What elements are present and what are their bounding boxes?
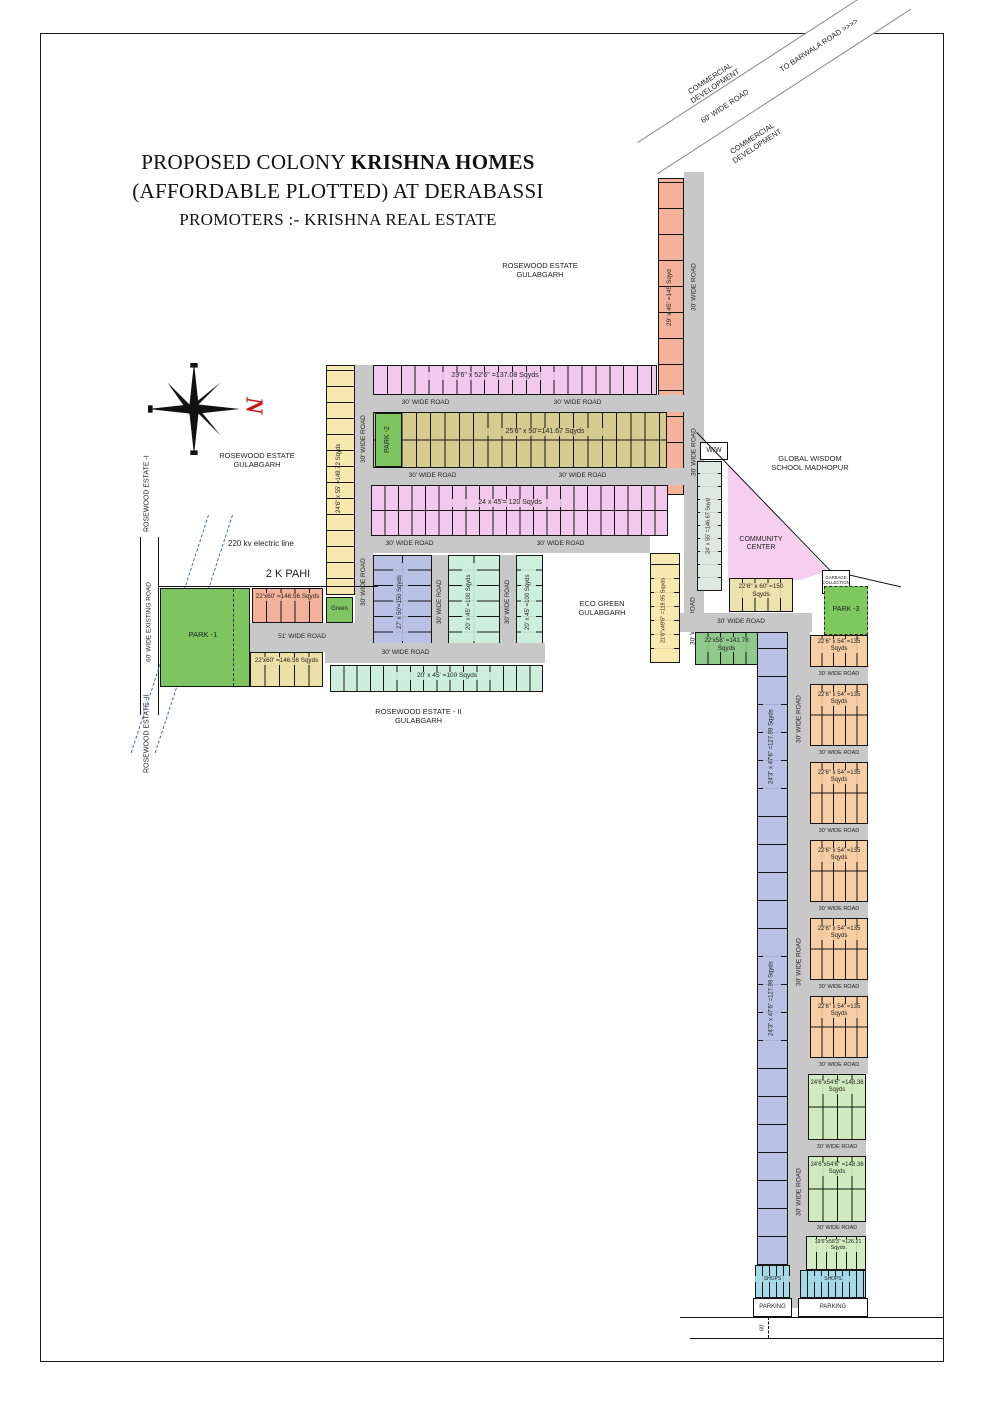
road-30-label-v6: 30' WIDE ROAD <box>434 568 447 636</box>
orange-road-label-4: 30' WIDE ROAD <box>812 906 866 912</box>
road-30-label-v8: 30' WIDE ROAD <box>792 682 807 757</box>
plot-label-146b: 24' x 55' =146.67 Sqyd <box>700 472 718 580</box>
plot-label-141: 25'6" x 50'=141.67 Sqyds <box>475 428 615 436</box>
north-marker: N <box>240 393 267 419</box>
orange-label-1: 22'6" x 54' =135 Sqyds <box>812 639 866 653</box>
plot-label-146-beige: 22'x60' =146.56 Sqyds <box>252 657 321 665</box>
road-30-label-h2b: 30' WIDE ROAD <box>545 472 620 480</box>
rosewood-estate-top-label: ROSEWOOD ESTATE GULABGARH <box>478 262 602 280</box>
park-1-label: PARK -1 <box>168 630 238 639</box>
shops-label-right: SHOPS <box>813 1276 853 1282</box>
road-30-label-h3a: 30' WIDE ROAD <box>372 540 447 548</box>
plot-label-100b: 20' x 45' =100 Sqyds <box>521 563 536 641</box>
title-normal: PROPOSED COLONY <box>141 150 350 174</box>
plot-label-24-6x55: 24'6" x 55' =149.72 Sqyds <box>331 408 348 548</box>
site-plan-sheet: PROPOSED COLONY KRISHNA HOMES (AFFORDABL… <box>0 0 1000 1416</box>
orange-road-label-2: 30' WIDE ROAD <box>812 750 866 756</box>
orange-road-label-5: 30' WIDE ROAD <box>812 984 866 990</box>
rosewood-estate-left-label: ROSEWOOD ESTATE GULABGARH <box>212 452 302 470</box>
title-bold: KRISHNA HOMES <box>351 150 535 174</box>
plot-label-100c: 20' x 45' =100 Sqyds <box>392 672 502 680</box>
road-30-label-h3b: 30' WIDE ROAD <box>523 540 598 548</box>
plot-label-126: 19'6"x58'3" =126.21 Sqyds <box>814 1239 862 1252</box>
park-3-label: PARK -3 <box>824 606 868 614</box>
road-51-label: 51' WIDE ROAD <box>258 633 346 641</box>
plot-label-100a: 20' x 45' =100 Sqyds <box>462 563 477 641</box>
dim-60-label: 60' <box>757 1320 768 1335</box>
plot-label-150v: 27' x 50'=150 Sqyds <box>393 563 408 641</box>
garbage-label: GARBAGE COLLECTION <box>822 575 850 585</box>
existing-60-road-label: 60' WIDE EXISTING ROAD <box>142 570 157 675</box>
bottom-line-2 <box>690 1338 944 1339</box>
community-center-label: COMMUNITY CENTER <box>730 536 792 553</box>
compass-rose-icon <box>148 363 240 455</box>
road-30-label-h1b: 30' WIDE ROAD <box>540 399 615 407</box>
orange-road-label-3: 30' WIDE ROAD <box>812 828 866 834</box>
existing-road-line-2 <box>158 537 159 715</box>
orange-label-4: 22'6" x 54' =135 Sqyds <box>812 848 866 862</box>
plot-block-141 <box>373 412 667 468</box>
green-plot-label: Green <box>326 606 353 613</box>
pahi-label: 2 K PAHI <box>258 568 318 581</box>
road-30-label-h2a: 30' WIDE ROAD <box>395 472 470 480</box>
plot-label-29x45: 29' x 45' =145 Sqyd <box>662 230 678 365</box>
plot-label-150: 22'6" x 60' =150 Sqyds <box>731 583 791 598</box>
promoters-line: PROMOTERS :- KRISHNA REAL ESTATE <box>118 210 558 230</box>
plot-label-127a: 24'3" x 47'6" =127.99 Sqyds <box>763 688 781 806</box>
road-30-label-v9: 30' WIDE ROAD <box>792 925 807 1000</box>
green-label-148b: 24'6"x54'6" =148.36 Sqyds <box>810 1162 864 1176</box>
park-2-label: PARK -2 <box>377 416 399 464</box>
plot-label-120: 24 x 45'= 120 Sqyds <box>450 499 570 507</box>
orange-label-3: 22'6" x 54' =135 Sqyds <box>812 770 866 784</box>
road-30-label-v7: 30' WIDE ROAD <box>502 568 515 636</box>
eco-green-label: ECO GREEN GULABGARH <box>566 600 638 618</box>
pahi-boundary-line <box>158 586 378 587</box>
orange-road-label-6: 30' WIDE ROAD <box>812 1062 866 1068</box>
plot-label-146-salmon: 22'x60' =146.56 Sqyds <box>254 593 321 601</box>
road-30-label-v1: 30' WIDE ROAD <box>687 250 702 325</box>
road-30-label-h4: 30' WIDE ROAD <box>368 649 443 657</box>
road-30-label-v10: 30' WIDE ROAD <box>792 1155 807 1230</box>
page-title: PROPOSED COLONY KRISHNA HOMES <box>118 150 558 175</box>
road-30-label-v5: 30' WIDE ROAD <box>357 543 371 621</box>
school-label: GLOBAL WISDOM SCHOOL MADHOPUR <box>768 455 852 473</box>
green-label-148a: 24'6"x54'6" =148.36 Sqyds <box>810 1080 864 1094</box>
dim-60-tick <box>768 1317 769 1338</box>
green-road-label-1: 30' WIDE ROAD <box>810 1144 864 1150</box>
plot-block-120 <box>371 485 668 536</box>
plot-label-141b: 22'x58' =141.78 Sqyds <box>697 637 756 652</box>
green-road-label-2: 30' WIDE ROAD <box>810 1225 864 1231</box>
plot-label-127b: 24'3" x 47'6" =127.99 Sqyds <box>763 940 781 1058</box>
page-subtitle: (AFFORDABLE PLOTTED) AT DERABASSI <box>118 179 558 204</box>
bottom-line-1 <box>680 1317 944 1318</box>
plot-label-119: 21'6"x49'6" =119.95 Sqyds <box>654 568 674 653</box>
parking-label-left: PARKING <box>753 1304 792 1311</box>
road-30-label-h5: 30' WIDE ROAD <box>706 618 776 626</box>
orange-label-6: 22'6" x 54' =135 Sqyds <box>812 1004 866 1018</box>
rosewood-1-label: ROSEWOOD ESTATE -I <box>140 450 155 538</box>
parking-label-right: PARKING <box>798 1304 868 1311</box>
shops-block-right <box>800 1270 866 1298</box>
orange-label-5: 22'6" x 54' =135 Sqyds <box>812 926 866 940</box>
electric-line-label: 220 kv electric line <box>228 539 318 548</box>
orange-label-2: 22'6" x 54' =135 Sqyds <box>812 692 866 706</box>
road-30-label-v4: 30' WIDE ROAD <box>357 400 371 478</box>
road-30-label-h1a: 30' WIDE ROAD <box>388 399 463 407</box>
shops-label-left: SHOPS <box>755 1276 790 1282</box>
plot-label-137: 23'6" x 52'6" =137.08 Sqyds <box>425 372 565 380</box>
title-block: PROPOSED COLONY KRISHNA HOMES (AFFORDABL… <box>118 150 558 230</box>
orange-road-label-1: 30' WIDE ROAD <box>812 671 866 677</box>
rosewood-2-full-label: ROSEWOOD ESTATE - II GULABGARH <box>366 708 471 726</box>
